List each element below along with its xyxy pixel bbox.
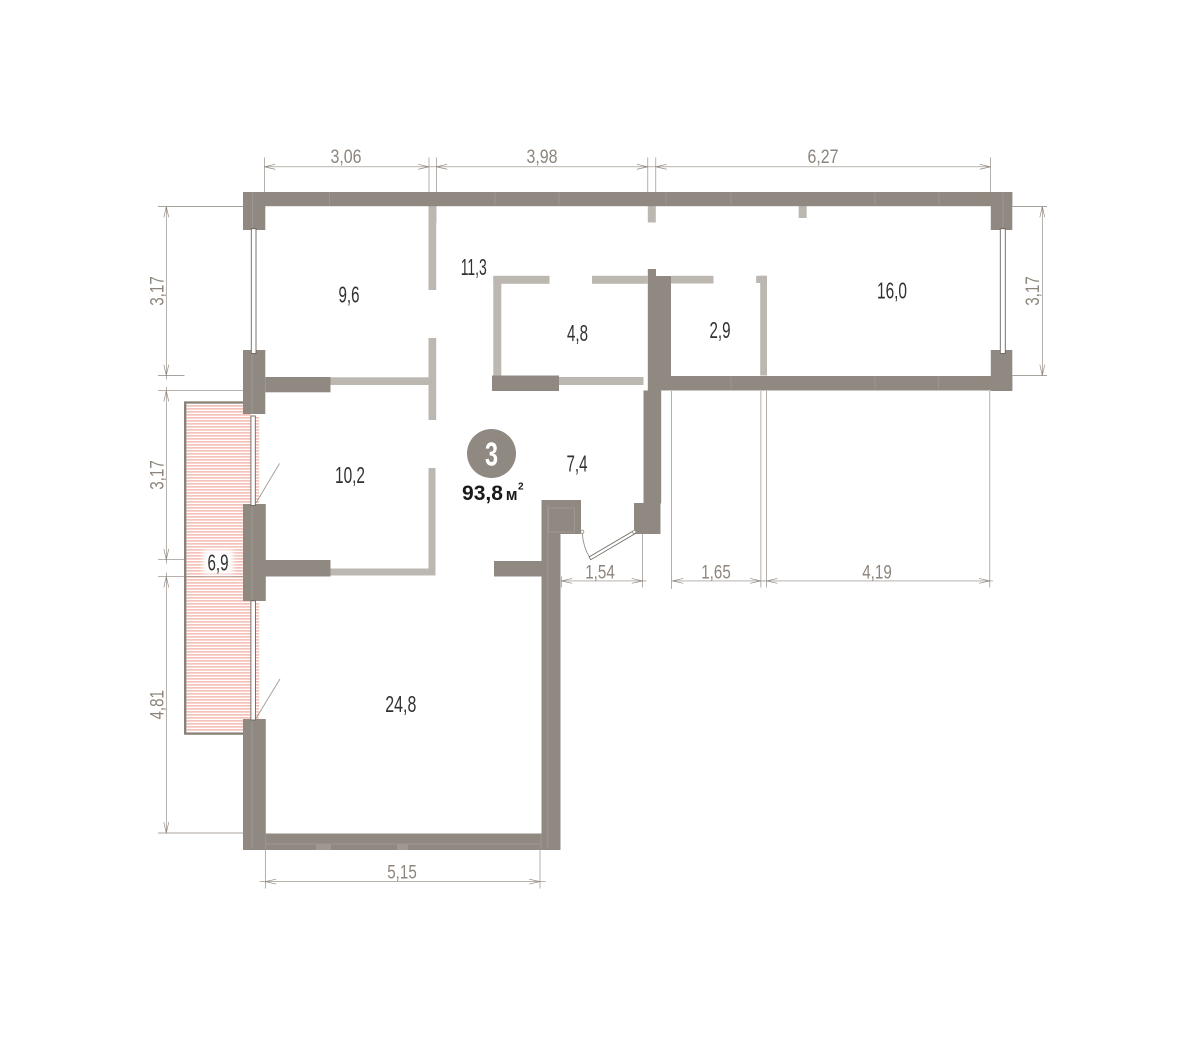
svg-text:3,06: 3,06 (331, 147, 362, 168)
svg-text:2,9: 2,9 (710, 317, 731, 343)
svg-text:3,17: 3,17 (147, 276, 168, 306)
svg-text:3: 3 (485, 436, 498, 473)
svg-text:5,15: 5,15 (387, 863, 417, 884)
svg-text:9,6: 9,6 (339, 281, 360, 307)
svg-text:6,9: 6,9 (208, 549, 229, 575)
svg-text:м: м (506, 485, 518, 504)
svg-text:2: 2 (518, 482, 524, 493)
svg-text:93,8: 93,8 (462, 481, 503, 505)
svg-text:6,27: 6,27 (808, 147, 839, 168)
svg-text:3,98: 3,98 (527, 147, 558, 168)
svg-text:1,65: 1,65 (701, 563, 731, 584)
svg-text:3,17: 3,17 (1023, 276, 1044, 306)
svg-text:3,17: 3,17 (147, 460, 168, 490)
svg-text:4,8: 4,8 (567, 320, 588, 346)
svg-text:4,81: 4,81 (147, 690, 168, 720)
svg-text:10,2: 10,2 (335, 462, 365, 488)
svg-text:11,3: 11,3 (461, 254, 487, 280)
svg-text:24,8: 24,8 (385, 691, 416, 717)
svg-text:16,0: 16,0 (877, 277, 907, 303)
svg-text:1,54: 1,54 (585, 563, 615, 584)
svg-text:7,4: 7,4 (567, 450, 588, 476)
svg-text:4,19: 4,19 (862, 563, 892, 584)
